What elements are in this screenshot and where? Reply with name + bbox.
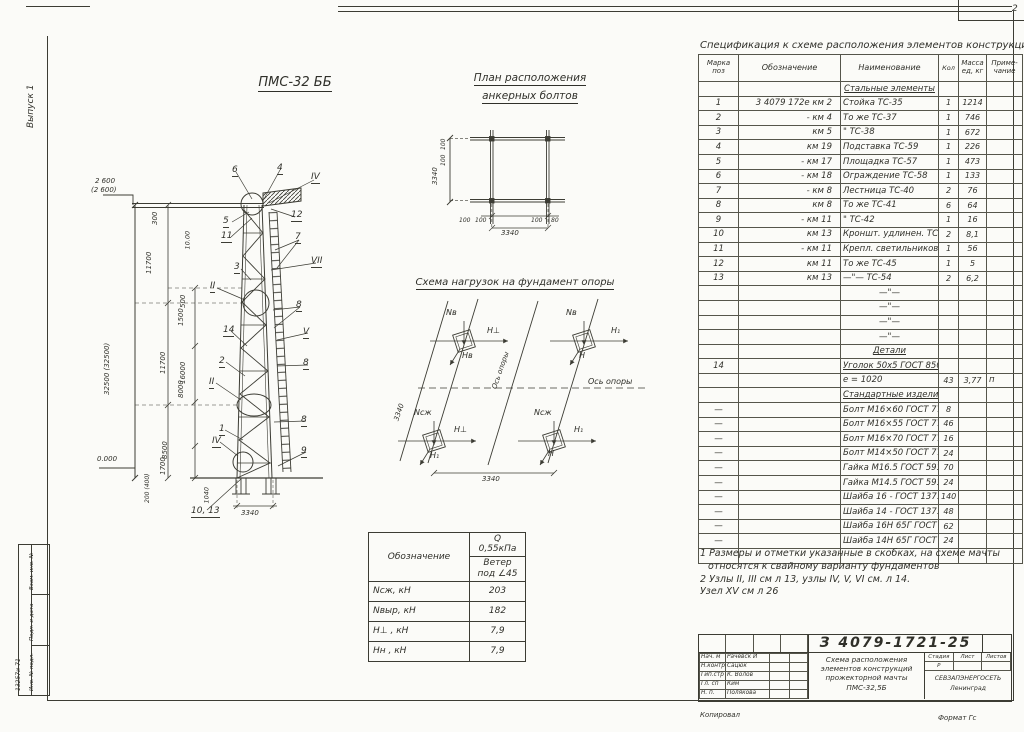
spec-designation: [739, 446, 841, 461]
spec-name: Ограждение ТС-58: [841, 169, 939, 184]
spec-row: —"—: [699, 330, 1023, 345]
spec-mark: 8: [699, 198, 739, 213]
spec-name: Болт М16×60 ГОСТ 7798-70: [841, 403, 939, 418]
edition-label: Выпуск 1: [26, 85, 36, 128]
spec-mass: 64: [959, 198, 987, 213]
spec-note: [987, 461, 1023, 476]
spec-qty: 1: [939, 96, 959, 111]
spec-qty: 1: [939, 154, 959, 169]
drawing-label: H: [548, 450, 554, 458]
spec-mass: [959, 432, 987, 447]
spec-mass: 226: [959, 140, 987, 155]
drawing-label: 1: [219, 425, 225, 436]
spec-mark: 2: [699, 111, 739, 126]
spec-note: п: [987, 373, 1023, 388]
spec-row: 10 км 13 Кроншт. удлинен. ТС-53 2 8,1: [699, 227, 1023, 242]
spec-note: [987, 140, 1023, 155]
spec-note: [987, 300, 1023, 315]
spec-name: —"—: [841, 330, 939, 345]
stage-value-row: Р: [925, 662, 1011, 671]
document-number: З 4079-1721-25: [809, 635, 983, 652]
drawing-label: 14: [223, 326, 234, 337]
load-symbol: Hн , кН: [369, 641, 470, 661]
spec-row: —"—: [699, 286, 1023, 301]
spec-mass: [959, 446, 987, 461]
drawing-label: VII: [311, 257, 322, 268]
specification-table: Маркапоз Обозначение Наименование Кол Ма…: [698, 54, 1023, 564]
spec-mark: —: [699, 490, 739, 505]
footer-format-label: Формат Гс: [938, 714, 976, 722]
load-values-table: Обозначение Q 0,55кПа Ветер под ∠45 Nсж,…: [368, 532, 526, 662]
spec-row: 6 - км 18 Ограждение ТС-58 1 133: [699, 169, 1023, 184]
spec-header-name: Наименование: [841, 55, 939, 82]
blueprint-page: 2 Выпуск 1 13257и-71 Взам. инв. № Подп. …: [0, 0, 1024, 732]
drawing-label: 100: [459, 218, 470, 224]
change-record-grid: [699, 635, 809, 652]
spec-row: Стандартные изделия: [699, 388, 1023, 403]
signature-role: Гип.стр: [700, 672, 726, 681]
spec-qty: [939, 315, 959, 330]
spec-mass: [959, 344, 987, 359]
spec-row: — Гайка М14.5 ГОСТ 5915-70 24: [699, 476, 1023, 491]
drawing-label: Hв: [462, 352, 473, 360]
drawing-title: Схема расположения элементов конструкций…: [809, 653, 925, 699]
drawing-label: 1700: [160, 457, 167, 475]
spec-name: Болт М16×70 ГОСТ 7798-70: [841, 432, 939, 447]
drawing-label: 32500 (32500): [104, 343, 111, 395]
drawing-label: 9: [301, 447, 307, 458]
drawing-label: Nв: [566, 309, 577, 317]
spec-name: Кроншт. удлинен. ТС-53: [841, 227, 939, 242]
spec-qty: 140: [939, 490, 959, 505]
spec-row: — Шайба 16Н 65Г ГОСТ 6402-70 62: [699, 519, 1023, 534]
spec-mass: [959, 315, 987, 330]
signature-sign: [770, 672, 790, 681]
spec-designation: км 13: [739, 227, 841, 242]
spec-mass: [959, 417, 987, 432]
organization-city: Ленинград: [925, 684, 1011, 694]
spec-qty: 1: [939, 257, 959, 272]
spec-designation: [739, 461, 841, 476]
signature-row: Гип.стр К. Волов: [700, 672, 808, 681]
spec-note: [987, 169, 1023, 184]
spec-header-qty: Кол: [939, 55, 959, 82]
corner-box-left: [958, 0, 959, 20]
spec-mark: 13: [699, 271, 739, 286]
spec-mark: [699, 82, 739, 97]
spec-mass: 1214: [959, 96, 987, 111]
drawing-label: 2: [219, 357, 225, 368]
drawing-label: IV: [311, 173, 320, 184]
spec-qty: 24: [939, 476, 959, 491]
spec-row: —"—: [699, 300, 1023, 315]
signature-name: К. Волов: [726, 672, 770, 681]
spec-mass: 56: [959, 242, 987, 257]
spec-designation: [739, 315, 841, 330]
mast-labels-layer: 64IV125117VII3II814V28II81IV910, 132 600…: [55, 100, 345, 540]
spec-designation: - км 11: [739, 242, 841, 257]
spec-name: Шайба 16Н 65Г ГОСТ 6402-70: [841, 519, 939, 534]
spec-mark: —: [699, 403, 739, 418]
load-value: 203: [470, 581, 526, 601]
page-corner-number: 2: [1012, 4, 1018, 14]
spec-name: Лестница ТС-40: [841, 184, 939, 199]
spec-row: е = 1020 43 3,77 п: [699, 373, 1023, 388]
spec-designation: [739, 344, 841, 359]
spec-mass: 16: [959, 213, 987, 228]
spec-qty: 70: [939, 461, 959, 476]
load-table-row: Nвыр, кН 182: [369, 601, 526, 621]
organization-name: СЕВЗАПЭНЕРГОСЕТЬ: [925, 674, 1011, 684]
drawing-label: 100: [475, 218, 486, 224]
drawing-label: 3340: [482, 476, 500, 483]
drawing-label: (2 600): [91, 187, 117, 194]
stamp-field-2: Подп. и дата: [32, 595, 49, 645]
spec-qty: 16: [939, 432, 959, 447]
stamp-field-3: Инв. № подл.: [32, 646, 49, 695]
load-table-wind-header: Ветер под ∠45: [470, 556, 526, 581]
drawing-label: 300: [152, 212, 159, 225]
spec-note: [987, 417, 1023, 432]
drawing-label: 11700: [160, 352, 167, 374]
spec-row: 8 км 8 То же ТС-41 6 64: [699, 198, 1023, 213]
spec-mark: [699, 344, 739, 359]
spec-header-note: Приме-чание: [987, 55, 1023, 82]
signature-sign: [770, 654, 790, 663]
spec-qty: 1: [939, 111, 959, 126]
spec-name: Шайба 16 - ГОСТ 1371-78: [841, 490, 939, 505]
signature-sign: [770, 681, 790, 690]
spec-mass: 672: [959, 125, 987, 140]
stage-header-row: Стадия Лист Листов: [925, 653, 1011, 662]
spec-name: То же ТС-45: [841, 257, 939, 272]
spec-mass: [959, 461, 987, 476]
spec-mass: [959, 519, 987, 534]
spec-name: " ТС-38: [841, 125, 939, 140]
spec-designation: [739, 519, 841, 534]
spec-qty: 1: [939, 242, 959, 257]
spec-row: 14 Уголок 50х5 ГОСТ 8509-86: [699, 359, 1023, 374]
spec-qty: 62: [939, 519, 959, 534]
spec-mark: 4: [699, 140, 739, 155]
plan-labels-layer: 3340100100100100100803340: [425, 128, 595, 248]
drawing-label: H⊥: [454, 426, 467, 434]
spec-note: [987, 111, 1023, 126]
drawing-label: V: [303, 328, 309, 339]
drawing-label: 500: [180, 295, 187, 308]
spec-mass: [959, 388, 987, 403]
spec-mark: 12: [699, 257, 739, 272]
spec-mark: —: [699, 432, 739, 447]
spec-designation: [739, 403, 841, 418]
spec-name: Площадка ТС-57: [841, 154, 939, 169]
spec-qty: 43: [939, 373, 959, 388]
drawing-label: 1500: [178, 308, 185, 326]
stage-label: Стадия: [925, 653, 954, 661]
margin-stamp: 13257и-71 Взам. инв. № Подп. и дата Инв.…: [18, 544, 50, 696]
spec-note: [987, 505, 1023, 520]
drawing-label: 11: [221, 232, 232, 243]
spec-mark: 3: [699, 125, 739, 140]
signature-role: Гл. сп: [700, 681, 726, 690]
spec-qty: 24: [939, 446, 959, 461]
drawing-label: Nв: [446, 309, 457, 317]
drawing-label: H₁: [574, 426, 583, 434]
drawing-label: 7: [295, 233, 301, 244]
load-table-symbol-header: Обозначение: [369, 533, 470, 582]
spec-mark: —: [699, 446, 739, 461]
spec-name: —"—: [841, 300, 939, 315]
drawing-label: Ось опоры: [491, 351, 510, 390]
spec-designation: [739, 476, 841, 491]
spec-mass: [959, 330, 987, 345]
drawing-label: 1040: [204, 487, 211, 504]
spec-mark: —: [699, 461, 739, 476]
spec-mark: [699, 330, 739, 345]
spec-name: Крепл. светильников ТС-44: [841, 242, 939, 257]
signature-name: Ким: [726, 681, 770, 690]
spec-designation: [739, 417, 841, 432]
corner-box-bottom: [958, 20, 1024, 21]
signature-row: Н.контр Сацюк: [700, 663, 808, 672]
spec-designation: [739, 300, 841, 315]
spec-mark: [699, 373, 739, 388]
signature-date: [790, 663, 808, 672]
spec-name: То же ТС-37: [841, 111, 939, 126]
drawing-label: 3: [234, 263, 240, 274]
spec-note: [987, 490, 1023, 505]
drawing-label: 3340: [501, 230, 519, 237]
spec-designation: [739, 534, 841, 549]
drawing-label: Nсж: [534, 409, 552, 417]
mast-title: ПМС-32 ББ: [195, 75, 395, 90]
spec-note: [987, 403, 1023, 418]
spec-note: [987, 184, 1023, 199]
spec-designation: км 5: [739, 125, 841, 140]
spec-row: Детали: [699, 344, 1023, 359]
drawing-label: 200 (400): [145, 474, 151, 504]
spec-mass: 76: [959, 184, 987, 199]
spec-designation: - км 17: [739, 154, 841, 169]
spec-qty: [939, 388, 959, 403]
spec-name: е = 1020: [841, 373, 939, 388]
drawing-label: 10, 13: [191, 507, 220, 518]
spec-mass: 746: [959, 111, 987, 126]
spec-note: [987, 388, 1023, 403]
spec-note: [987, 359, 1023, 374]
spec-row: —"—: [699, 315, 1023, 330]
spec-mass: [959, 476, 987, 491]
spec-name: Болт М14×50 ГОСТ 7798-70: [841, 446, 939, 461]
spec-mark: 14: [699, 359, 739, 374]
spec-row: 7 - км 8 Лестница ТС-40 2 76: [699, 184, 1023, 199]
spec-qty: 1: [939, 125, 959, 140]
spec-qty: 1: [939, 169, 959, 184]
spec-mass: 473: [959, 154, 987, 169]
signature-role: Н.контр: [700, 663, 726, 672]
spec-mark: —: [699, 476, 739, 491]
spec-note: [987, 125, 1023, 140]
spec-qty: 1: [939, 140, 959, 155]
signature-role: Нач. м: [700, 654, 726, 663]
drawing-label: H⊥: [487, 327, 500, 335]
spec-qty: [939, 286, 959, 301]
spec-name: Шайба 14 - ГОСТ 1371-78: [841, 505, 939, 520]
spec-mark: 9: [699, 213, 739, 228]
spec-mark: —: [699, 505, 739, 520]
spec-designation: [739, 82, 841, 97]
spec-row: 4 км 19 Подставка ТС-59 1 226: [699, 140, 1023, 155]
footer-copied-label: Копировал: [700, 711, 740, 719]
spec-designation: - км 4: [739, 111, 841, 126]
spec-note: [987, 242, 1023, 257]
spec-note: [987, 432, 1023, 447]
spec-note: [987, 271, 1023, 286]
spec-qty: 6: [939, 198, 959, 213]
spec-row: 13 км 13 —"— ТС-54 2 6,2: [699, 271, 1023, 286]
load-symbol: Nвыр, кН: [369, 601, 470, 621]
spec-mark: —: [699, 519, 739, 534]
spec-note: [987, 154, 1023, 169]
spec-mass: 133: [959, 169, 987, 184]
spec-row: — Болт М14×50 ГОСТ 7798-70 24: [699, 446, 1023, 461]
spec-row: 12 км 11 То же ТС-45 1 5: [699, 257, 1023, 272]
signature-row: Гл. сп Ким: [700, 681, 808, 690]
spec-name: Стойка ТС-35: [841, 96, 939, 111]
spec-qty: 48: [939, 505, 959, 520]
spec-qty: [939, 344, 959, 359]
drawing-label: 3340: [241, 510, 259, 517]
spec-row: 9 - км 11 " ТС-42 1 16: [699, 213, 1023, 228]
spec-mass: [959, 300, 987, 315]
spec-designation: км 13: [739, 271, 841, 286]
drawing-label: 6: [232, 166, 238, 177]
spec-row: — Шайба 16 - ГОСТ 1371-78 140: [699, 490, 1023, 505]
load-table-q-header: Q 0,55кПа: [470, 533, 526, 557]
spec-note: [987, 315, 1023, 330]
spec-mass: [959, 403, 987, 418]
signature-date: [790, 681, 808, 690]
spec-row: Стальные элементы: [699, 82, 1023, 97]
spec-name: Стандартные изделия: [841, 388, 939, 403]
spec-header-row: Маркапоз Обозначение Наименование Кол Ма…: [699, 55, 1023, 82]
spec-row: 2 - км 4 То же ТС-37 1 746: [699, 111, 1023, 126]
frame-top-segment: [26, 6, 90, 7]
spec-mark: —: [699, 417, 739, 432]
spec-designation: км 11: [739, 257, 841, 272]
spec-header-designation: Обозначение: [739, 55, 841, 82]
signature-name: Сацюк: [726, 663, 770, 672]
signature-date: [790, 672, 808, 681]
spec-qty: 46: [939, 417, 959, 432]
spec-note: [987, 344, 1023, 359]
signature-sign: [770, 663, 790, 672]
loads-labels-layer: NвH⊥HвNвH₁HОсь опорыОсь опорыNсжH⊥H₁NсжH…: [390, 295, 700, 495]
signature-row: Н. п. Полякова: [700, 690, 808, 699]
spec-note: [987, 534, 1023, 549]
signature-name: Полякова: [726, 690, 770, 699]
drawing-label: H: [579, 352, 585, 360]
load-value: 7,9: [470, 621, 526, 641]
note-1: 1 Размеры и отметки указанные в скобках,…: [700, 548, 1008, 574]
drawing-label: 10.00: [185, 231, 192, 250]
loads-title: Схема нагрузок на фундамент опоры: [400, 277, 630, 288]
spec-title: Спецификация к схеме расположения элемен…: [700, 40, 1024, 51]
load-symbol: H⊥ , кН: [369, 621, 470, 641]
spec-row: — Болт М16×55 ГОСТ 7798-70 46: [699, 417, 1023, 432]
spec-qty: [939, 300, 959, 315]
spec-note: [987, 82, 1023, 97]
drawing-label: 4: [277, 164, 283, 175]
spec-note: [987, 227, 1023, 242]
spec-designation: км 8: [739, 198, 841, 213]
anchor-plan-title: План расположения анкерных болтов: [440, 70, 620, 106]
spec-designation: [739, 490, 841, 505]
drawing-label: 11700: [146, 252, 153, 274]
spec-designation: [739, 330, 841, 345]
spec-name: Болт М16×55 ГОСТ 7798-70: [841, 417, 939, 432]
spec-note: [987, 330, 1023, 345]
drawing-label: H₁: [611, 327, 620, 335]
notes-block: 1 Размеры и отметки указанные в скобках,…: [700, 548, 1008, 599]
spec-name: Шайба 14Н 65Г ГОСТ 6402-70: [841, 534, 939, 549]
spec-mass: [959, 359, 987, 374]
spec-qty: 24: [939, 534, 959, 549]
spec-mass: 8,1: [959, 227, 987, 242]
drawing-label: Nсж: [414, 409, 432, 417]
load-table-row: H⊥ , кН 7,9: [369, 621, 526, 641]
signature-role: Н. п.: [700, 690, 726, 699]
spec-name: —"—: [841, 286, 939, 301]
drawing-label: II: [210, 282, 215, 293]
drawing-label: 12: [291, 211, 302, 222]
spec-mark: 11: [699, 242, 739, 257]
spec-mark: 5: [699, 154, 739, 169]
spec-designation: - км 8: [739, 184, 841, 199]
spec-note: [987, 213, 1023, 228]
signature-sign: [770, 690, 790, 699]
drawing-label: 3340: [393, 403, 405, 422]
spec-name: Стальные элементы: [841, 82, 939, 97]
stamp-number: 13257и-71: [15, 658, 22, 691]
sheets-label: Листов: [982, 653, 1011, 661]
spec-row: 3 км 5 " ТС-38 1 672: [699, 125, 1023, 140]
drawing-label: 2 600: [95, 178, 115, 185]
spec-designation: [739, 359, 841, 374]
drawing-label: 8: [296, 301, 302, 312]
spec-mass: 5: [959, 257, 987, 272]
spec-row: — Болт М16×70 ГОСТ 7798-70 16: [699, 432, 1023, 447]
spec-name: Подставка ТС-59: [841, 140, 939, 155]
drawing-label: Ось опоры: [588, 378, 632, 386]
title-block: З 4079-1721-25 Нач. м Рачевск И: [698, 634, 1012, 702]
spec-qty: [939, 330, 959, 345]
spec-qty: 2: [939, 271, 959, 286]
spec-designation: [739, 373, 841, 388]
spec-note: [987, 476, 1023, 491]
spec-name: —"— ТС-54: [841, 271, 939, 286]
drawing-label: 100: [441, 139, 447, 150]
spec-mass: [959, 286, 987, 301]
spec-designation: [739, 388, 841, 403]
frame-top-line-1: [338, 6, 1012, 7]
spec-mass: [959, 534, 987, 549]
spec-name: " ТС-42: [841, 213, 939, 228]
spec-name: Детали: [841, 344, 939, 359]
signature-row: Нач. м Рачевск И: [700, 654, 808, 663]
spec-mass: [959, 490, 987, 505]
signature-date: [790, 654, 808, 663]
